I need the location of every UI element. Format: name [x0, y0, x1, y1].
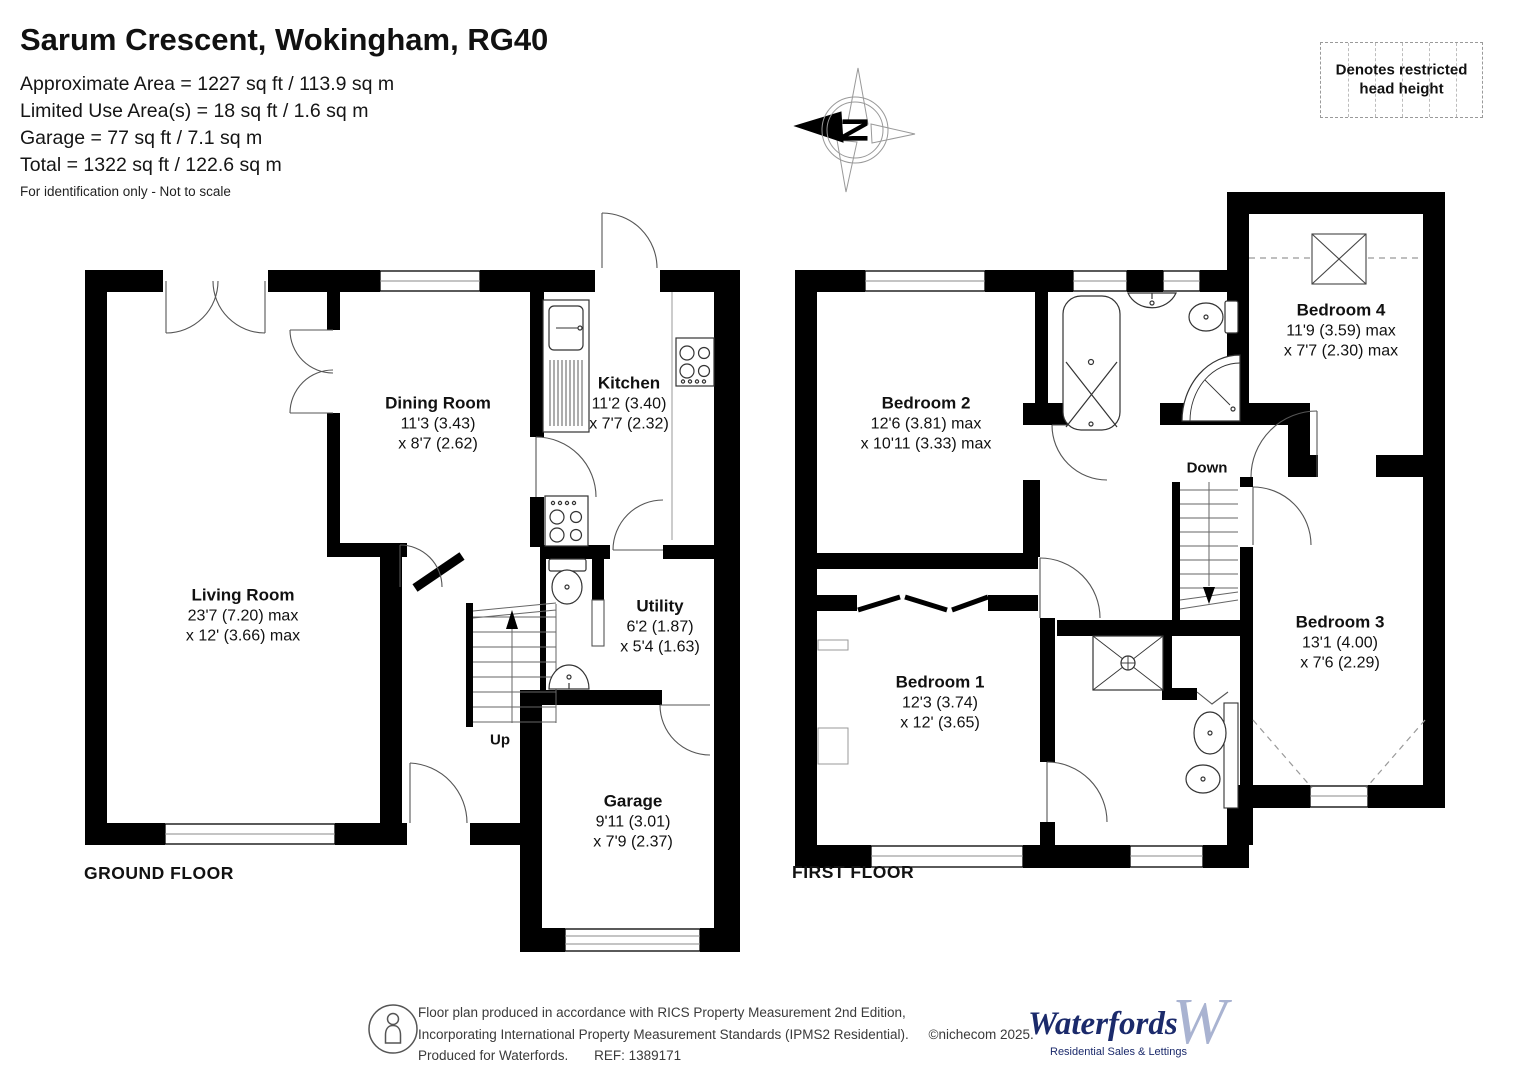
- copyright-text: ©nichecom 2025.: [929, 1027, 1034, 1042]
- rics-line-1: Floor plan produced in accordance with R…: [418, 1005, 906, 1020]
- produced-for-text: Produced for Waterfords.: [418, 1048, 568, 1063]
- bedroom2-label: Bedroom 2 12'6 (3.81) max x 10'11 (3.33)…: [861, 393, 992, 456]
- first-floor-plan: [795, 192, 1445, 868]
- bedroom3-label: Bedroom 3 13'1 (4.00) x 7'6 (2.29): [1296, 612, 1385, 675]
- bedroom4-label: Bedroom 4 11'9 (3.59) max x 7'7 (2.30) m…: [1284, 300, 1398, 363]
- compass-icon: N: [795, 68, 915, 192]
- understairs-wall: [415, 556, 462, 588]
- stairs-down-label: Down: [1187, 460, 1228, 477]
- shower-tray-icon: [1093, 636, 1163, 690]
- ensuite-toilet-icon: [1186, 765, 1220, 793]
- approx-area-line: Approximate Area = 1227 sq ft / 113.9 sq…: [20, 73, 394, 96]
- footer-disclaimer: Floor plan produced in accordance with R…: [418, 1002, 1034, 1067]
- bedroom1-label: Bedroom 1 12'3 (3.74) x 12' (3.65): [896, 672, 985, 735]
- waterfords-logo: W Waterfords Residential Sales & Letting…: [1028, 1000, 1228, 1070]
- bed1-alcoves: [818, 640, 848, 764]
- corner-shower-icon: [1182, 355, 1240, 421]
- compass-north-label: N: [835, 117, 876, 143]
- garage-label: Garage 9'11 (3.01) x 7'9 (2.37): [593, 791, 673, 854]
- waterfords-name: Waterfords: [1028, 1006, 1178, 1043]
- reference-number: REF: 1389171: [594, 1048, 681, 1063]
- total-area-line: Total = 1322 sq ft / 122.6 sq m: [20, 154, 282, 177]
- wc-toilet-icon: [549, 559, 586, 604]
- skylight-icon: [1312, 234, 1366, 284]
- kitchen-label: Kitchen 11'2 (3.40) x 7'7 (2.32): [589, 373, 669, 436]
- legend-label: Denotes restricted head height: [1321, 61, 1482, 99]
- ground-door-swings: [166, 213, 710, 823]
- waterfords-tagline: Residential Sales & Lettings: [1050, 1046, 1187, 1058]
- wardrobe-icon: [858, 597, 988, 610]
- wc-basin-icon: [549, 665, 589, 689]
- dining-room-label: Dining Room 11'3 (3.43) x 8'7 (2.62): [385, 393, 491, 456]
- scale-disclaimer: For identification only - Not to scale: [20, 184, 231, 199]
- living-room-label: Living Room 23'7 (7.20) max x 12' (3.66)…: [186, 585, 300, 648]
- kitchen-sink-unit-icon: [543, 300, 589, 432]
- limited-use-line: Limited Use Area(s) = 18 sq ft / 1.6 sq …: [20, 100, 368, 123]
- floorplan-page: N: [0, 0, 1528, 1080]
- utility-label: Utility 6'2 (1.87) x 5'4 (1.63): [620, 596, 700, 659]
- first-floor-label: FIRST FLOOR: [792, 862, 914, 883]
- first-walls: [795, 192, 1445, 868]
- bathroom-basin-icon: [1128, 293, 1176, 308]
- garage-door: [565, 929, 700, 951]
- garage-area-line: Garage = 77 sq ft / 7.1 sq m: [20, 127, 262, 150]
- page-title: Sarum Crescent, Wokingham, RG40: [20, 22, 548, 58]
- person-scale-icon: [366, 1002, 420, 1056]
- stairs-down-icon: [1180, 482, 1238, 609]
- bathroom-toilet-icon: [1189, 301, 1238, 333]
- stairs-up-label: Up: [490, 732, 510, 749]
- ensuite-vanity-icon: [1224, 703, 1238, 808]
- rics-line-2: Incorporating International Property Mea…: [418, 1027, 909, 1042]
- cooker-icon: [545, 496, 588, 546]
- hob-icon: [676, 338, 714, 386]
- restricted-head-height-legend: Denotes restricted head height: [1320, 42, 1483, 118]
- bathtub-icon: [1063, 296, 1120, 430]
- ground-floor-label: GROUND FLOOR: [84, 863, 234, 884]
- ensuite-basin-icon: [1194, 712, 1226, 754]
